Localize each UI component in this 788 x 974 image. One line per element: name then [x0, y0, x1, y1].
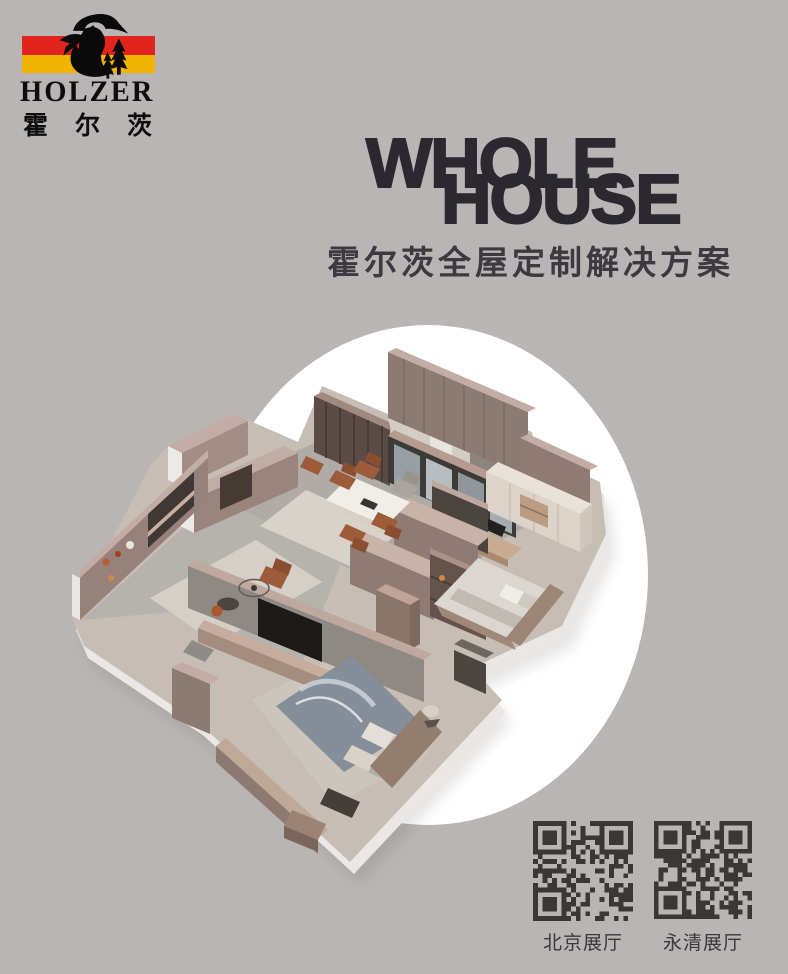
brand-name: HOLZER — [20, 76, 163, 110]
living-cabinet-wall — [72, 450, 208, 620]
floors — [82, 436, 524, 804]
hero-circle — [208, 325, 648, 825]
qr-code-yongqing-showroom — [654, 821, 752, 919]
second-bedroom — [434, 558, 564, 650]
desk-lamp — [468, 507, 476, 515]
qr-code-beijing-showroom — [533, 821, 633, 921]
glass-sliding-doors — [388, 436, 516, 538]
dining-table — [326, 476, 410, 526]
single-bed — [434, 558, 552, 638]
qr-label-beijing: 北京展厅 — [533, 928, 633, 955]
qr-label-yongqing: 永清展厅 — [654, 928, 752, 955]
master-bed — [276, 656, 422, 772]
headline-subtitle: 霍尔茨全屋定制解决方案 — [327, 236, 734, 284]
desk-monitor — [478, 516, 506, 537]
tv-screen — [258, 598, 322, 662]
master-bedroom — [216, 639, 494, 854]
holzer-logo: HOLZER 霍尔茨 — [18, 14, 188, 164]
brand-name-chinese: 霍尔茨 — [23, 106, 173, 142]
living-room — [172, 558, 432, 734]
entry-hall — [168, 414, 298, 533]
kitchen-glass-room — [388, 348, 598, 538]
dark-slat-wall — [314, 392, 398, 486]
headline-line2: HOUSE — [441, 164, 680, 234]
armchair — [259, 566, 288, 589]
hallway-walls — [350, 480, 492, 650]
study-nook — [440, 462, 592, 567]
apartment-base — [72, 372, 616, 884]
display-shelf-unit — [430, 554, 486, 640]
dining-area — [300, 452, 420, 553]
